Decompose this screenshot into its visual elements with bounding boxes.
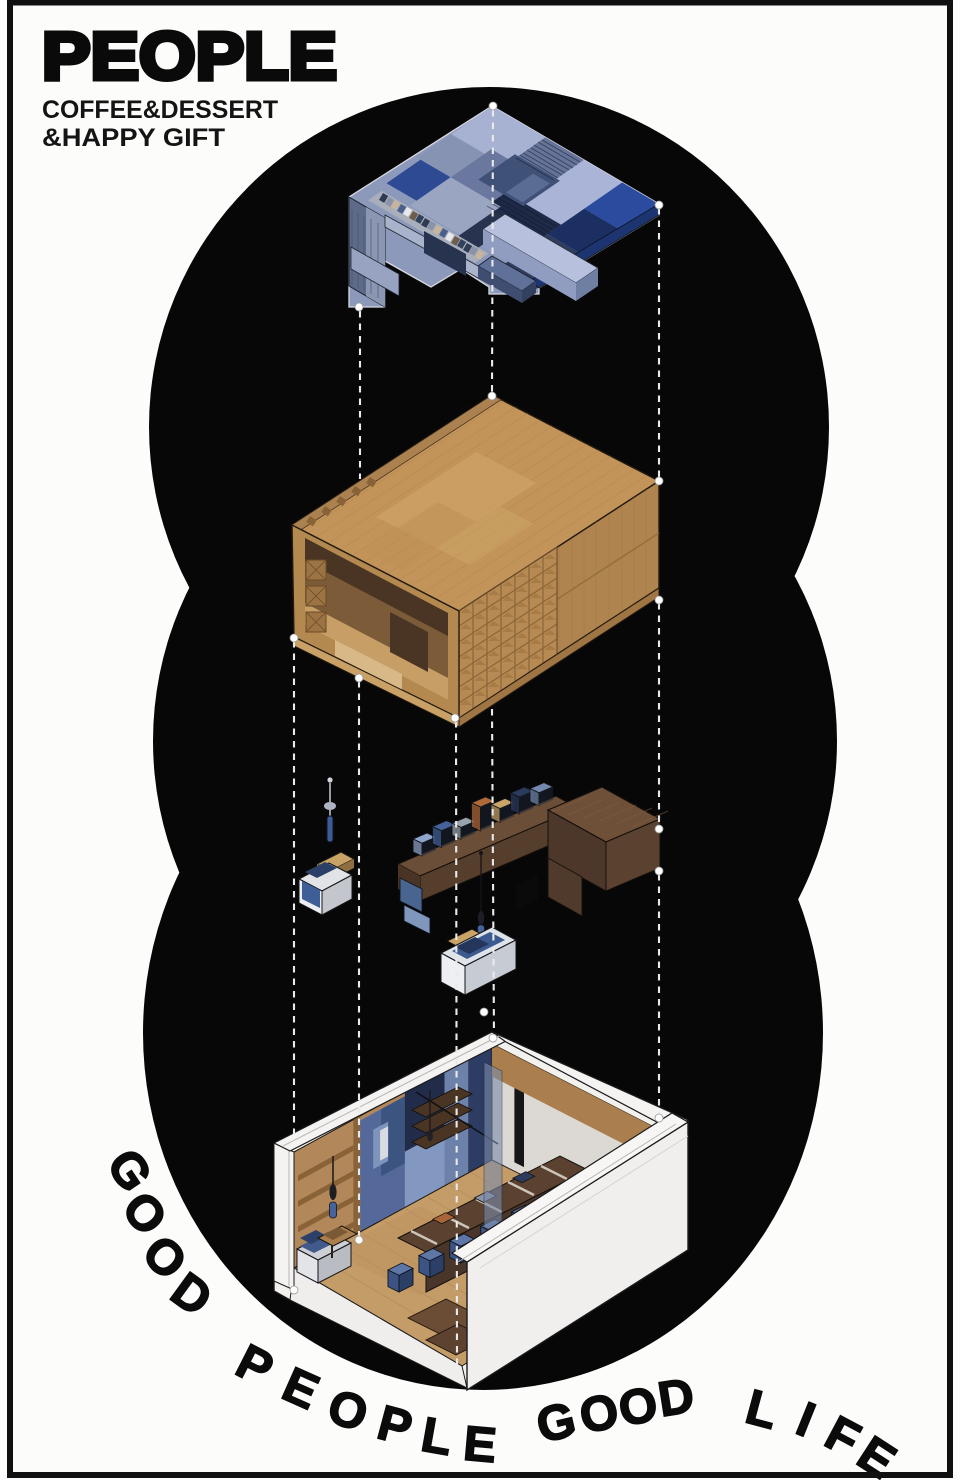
svg-text:E: E [461, 1417, 498, 1474]
svg-text:COFFEE&DESSERT: COFFEE&DESSERT [42, 96, 278, 124]
svg-text:PEOPLE: PEOPLE [42, 19, 337, 94]
svg-text:&HAPPY GIFT: &HAPPY GIFT [42, 124, 225, 152]
